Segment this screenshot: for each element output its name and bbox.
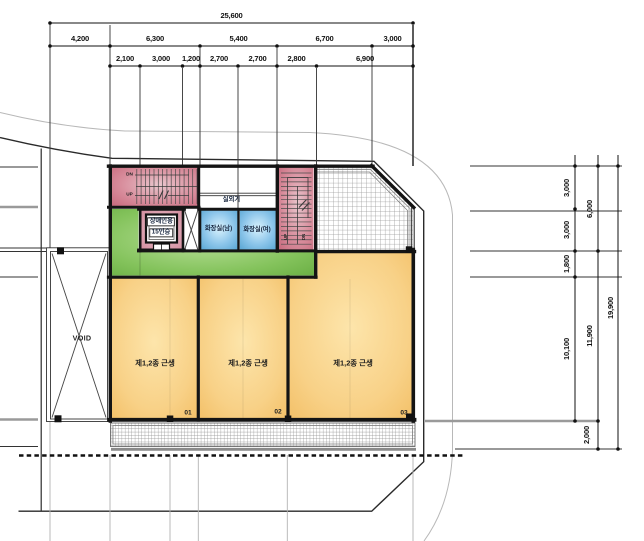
dim-top2-5: 3,000 bbox=[383, 35, 401, 43]
canopy-hatch bbox=[111, 423, 417, 449]
stair-left-dn-label: DN bbox=[126, 172, 133, 177]
restroom-women-label: 화장실(여) bbox=[243, 226, 270, 232]
dim-top2-3: 5,400 bbox=[229, 35, 247, 43]
dim-top2-1: 4,200 bbox=[71, 35, 89, 43]
dim-right1-2: 3,000 bbox=[563, 221, 571, 239]
dim-top2-2: 6,300 bbox=[146, 35, 164, 43]
void-label: VOID bbox=[73, 334, 92, 341]
floor-plan-canvas bbox=[0, 0, 644, 541]
elevator-lobby-x bbox=[185, 210, 199, 250]
retail-room-02-label: 제1,2종 근생 bbox=[228, 359, 268, 366]
dim-top3-5: 2,700 bbox=[248, 55, 266, 63]
retail-room-01 bbox=[112, 279, 198, 420]
dim-canopy-depth: 2,000 bbox=[583, 426, 591, 444]
dim-right3-1: 19,900 bbox=[607, 296, 615, 318]
dim-right2-1: 6,000 bbox=[586, 199, 594, 217]
dim-right1-4: 10,100 bbox=[563, 338, 571, 360]
terrace-hatch bbox=[316, 166, 414, 251]
restroom-men-label: 화장실(남) bbox=[205, 226, 232, 232]
retail-room-01-label: 제1,2종 근생 bbox=[135, 359, 175, 366]
dim-right1-3: 1,800 bbox=[563, 255, 571, 273]
dim-top3-6: 2,800 bbox=[287, 55, 305, 63]
elevator-label-line1: 장애인용 bbox=[147, 217, 175, 226]
unit-number-01: 01 bbox=[184, 411, 191, 418]
unit-number-02: 02 bbox=[274, 409, 281, 416]
dim-top3-7: 6,900 bbox=[356, 55, 374, 63]
dim-right1-1: 3,000 bbox=[563, 178, 571, 196]
unit-number-03: 03 bbox=[400, 411, 407, 418]
retail-room-03-label: 제1,2종 근생 bbox=[333, 359, 373, 366]
outdoor-unit-label: 실외기 bbox=[223, 197, 240, 203]
dim-top2-4: 6,700 bbox=[315, 35, 333, 43]
dim-top3-2: 3,000 bbox=[152, 55, 170, 63]
dim-right2-2: 11,900 bbox=[586, 325, 594, 347]
stair-right-dn-label: DN bbox=[302, 234, 306, 240]
dim-top3-4: 2,700 bbox=[210, 55, 228, 63]
stair-left-up-label: UP bbox=[126, 193, 133, 198]
floor-plan-page: 25,600 4,200 6,300 5,400 6,700 3,000 2,1… bbox=[0, 0, 644, 541]
dim-top3-1: 2,100 bbox=[116, 55, 134, 63]
dim-top3-3: 1,200 bbox=[182, 55, 200, 63]
elevator-label-line2: 15인승 bbox=[149, 228, 173, 237]
dim-total-width: 25,600 bbox=[220, 12, 242, 20]
stair-right-up-label: UP bbox=[284, 234, 288, 240]
